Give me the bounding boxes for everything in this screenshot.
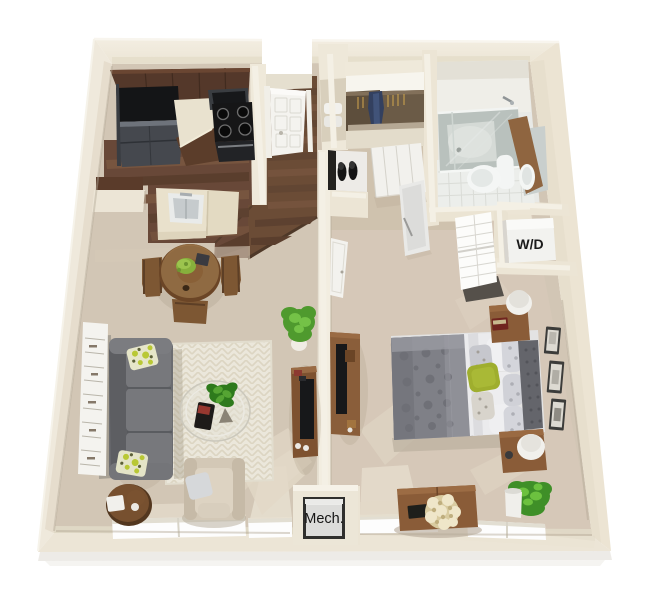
svg-text:Mech.: Mech.: [304, 511, 344, 527]
svg-text:W/D: W/D: [516, 236, 543, 252]
